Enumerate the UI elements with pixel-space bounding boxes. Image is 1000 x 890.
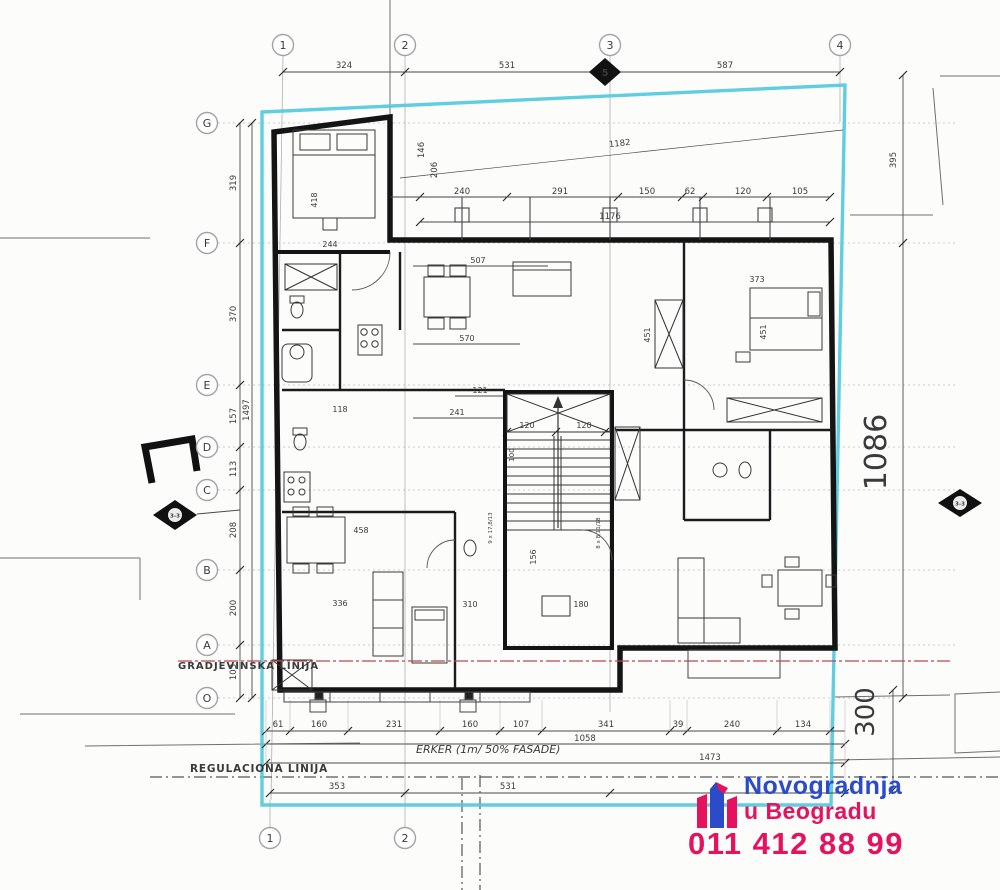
grid-label: 2	[402, 39, 409, 52]
grid-label: G	[203, 117, 212, 130]
dim-label: 62	[685, 187, 696, 197]
grid-label: 4	[837, 39, 844, 52]
dim-label: 160	[311, 720, 327, 730]
dim-label: 160	[462, 720, 478, 730]
dim-label: 113	[229, 461, 239, 477]
dim-label: 39	[673, 720, 684, 730]
grid-label: 2	[402, 832, 409, 845]
dim-label: 100	[508, 448, 516, 461]
erker-note: ERKER (1m/ 50% FASADE)	[416, 743, 560, 756]
dim-label: 200	[229, 600, 239, 616]
dim-label: 458	[353, 526, 368, 535]
stair-note: 8 x 8,11/18	[596, 517, 602, 549]
dim-label: 107	[513, 720, 529, 730]
dim-label: 395	[889, 152, 899, 168]
dim-label: 451	[759, 324, 768, 339]
dim-label: 418	[310, 192, 319, 207]
dim-label: 121	[472, 386, 487, 395]
grid-label: E	[204, 379, 211, 392]
corner-symbol	[145, 439, 197, 483]
dim-label: 105	[792, 187, 808, 197]
dim-label: 319	[229, 175, 239, 191]
dim-label: 120	[576, 421, 591, 430]
grid-label: O	[203, 692, 212, 705]
grid-label: B	[203, 564, 211, 577]
section-label-top: 5	[602, 68, 609, 79]
brand-line-2: u Beogradu	[744, 800, 1000, 823]
dim-label: 118	[332, 405, 347, 414]
dim-label: 180	[573, 600, 588, 609]
grid-label: 1	[267, 832, 274, 845]
building-line-label: GRADJEVINSKA LINIJA	[178, 661, 319, 672]
dim-label: 370	[229, 306, 239, 322]
section-label-right: 3-3	[955, 502, 965, 508]
dimension-labels: 324 531 587 240 291 150 62 120 105 1176 …	[229, 61, 899, 792]
furniture	[282, 130, 836, 663]
dim-label: 324	[336, 61, 352, 71]
stair-note: 9 x 17,8/13	[488, 512, 494, 544]
grid-label: 3	[607, 39, 614, 52]
dim-label: 310	[462, 600, 477, 609]
dim-label: 231	[386, 720, 402, 730]
dim-label: 1086	[859, 414, 894, 490]
dim-label: 570	[459, 334, 474, 343]
grid-label: D	[203, 441, 211, 454]
balconies	[284, 650, 780, 712]
floor-plan-sheet: GRADJEVINSKA LINIJA REGULACIONA LINIJA E…	[0, 0, 1000, 890]
dim-label: 300	[851, 687, 881, 737]
dim-label: 150	[639, 187, 655, 197]
novogradnja-logo: Novogradnja u Beogradu 011 412 88 99	[686, 774, 1000, 884]
dim-label: 531	[499, 61, 515, 71]
interior-labels: 418 244 507 570 121 241 118 373 451 451 …	[310, 192, 768, 609]
grid-label: A	[203, 639, 211, 652]
dim-label: 587	[717, 61, 733, 71]
dim-label: 103	[229, 664, 239, 680]
dim-label: 353	[329, 782, 345, 792]
dim-label: 336	[332, 599, 347, 608]
dim-label: 1058	[574, 734, 596, 744]
dim-label: 244	[322, 240, 337, 249]
floor-plan-drawing: GRADJEVINSKA LINIJA REGULACIONA LINIJA E…	[0, 0, 1000, 890]
section-label-left: 3-3	[170, 514, 180, 520]
dim-label: 341	[598, 720, 614, 730]
dim-label: 507	[470, 256, 485, 265]
dim-label: 120	[735, 187, 751, 197]
dim-label: 208	[229, 522, 239, 538]
grid-label: 1	[280, 39, 287, 52]
dim-label: 146	[417, 142, 427, 158]
dim-label: 531	[500, 782, 516, 792]
dim-label: 157	[229, 408, 239, 424]
dim-label: 1176	[599, 212, 621, 222]
dim-label: 291	[552, 187, 568, 197]
dim-label: 1182	[609, 138, 632, 150]
dim-label: 373	[749, 275, 764, 284]
brand-line-1: Novogradnja	[744, 774, 1000, 800]
dim-label: 120	[519, 421, 534, 430]
dim-label: 134	[795, 720, 811, 730]
dim-label: 206	[430, 162, 440, 178]
buildings-icon	[694, 780, 742, 834]
dim-label: 1473	[699, 753, 721, 763]
grid-label: C	[203, 484, 211, 497]
neighbor-parcel-lines	[0, 0, 1000, 760]
building-walls	[274, 117, 835, 690]
dim-label: 240	[724, 720, 740, 730]
dim-label: 156	[529, 549, 538, 564]
regulation-line-label: REGULACIONA LINIJA	[190, 763, 328, 775]
dim-label: 240	[454, 187, 470, 197]
dim-label: 241	[449, 408, 464, 417]
dim-label: 451	[643, 327, 652, 342]
dim-label: 1497	[242, 399, 252, 421]
dim-label: 61	[273, 720, 284, 730]
grid-label: F	[204, 237, 210, 250]
